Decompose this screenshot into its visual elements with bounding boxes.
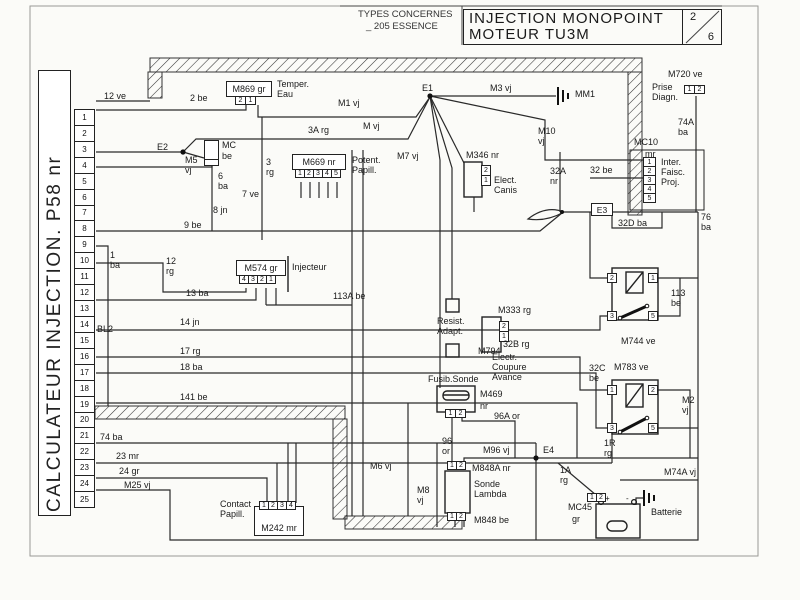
resist-adapt-label: Resist.Adapt.: [437, 316, 465, 336]
pin-cell: 14: [74, 316, 95, 333]
fusib-sonde-title: Fusib.Sonde: [428, 374, 479, 384]
elect-canis-label: Elect.Canis: [494, 175, 517, 195]
ecu-label: CALCULATEUR INJECTION. P58 nr: [44, 68, 66, 512]
pin-cell: 1: [245, 96, 256, 105]
battery-plus: +: [605, 495, 610, 504]
wire-label-m25vj: M25 vj: [124, 480, 151, 490]
wire-label-m5vj: M5 vj: [185, 155, 201, 175]
temper-eau-label: Temper.Eau: [277, 79, 309, 99]
wire-label-141be: 141 be: [180, 392, 208, 402]
contact-papill-ref: M242 mr: [254, 506, 304, 536]
relay-inj-pin3: 3: [607, 423, 617, 433]
pin-cell: 16: [74, 348, 95, 365]
sonde-bottom-ref: M848 be: [474, 515, 509, 525]
page-indicator: 2 6: [682, 9, 722, 45]
pin-cell: 4: [286, 501, 296, 510]
relay-inj-pin2: 2: [648, 385, 658, 395]
pin-cell: 8: [74, 220, 95, 237]
wire-label-96aor: 96A or: [494, 411, 520, 421]
pin-cell: 5: [74, 173, 95, 190]
pin-cell: 22: [74, 443, 95, 460]
pin-cell: 4: [74, 157, 95, 174]
fusib-sonde-ref: M469: [480, 389, 503, 399]
injecteur-connector: 4321: [240, 275, 276, 284]
page-total: 6: [708, 31, 714, 43]
elect-canis-ref: M346 nr: [466, 150, 499, 160]
relay-pompe-pin1: 1: [648, 273, 658, 283]
mc-color: be: [222, 151, 232, 161]
page-number: 2: [690, 11, 696, 23]
pin-cell: 12: [74, 284, 95, 301]
wire-label-18ba: 18 ba: [180, 362, 203, 372]
wire-label-m3vj: M3 vj: [490, 83, 512, 93]
wire-label-3rg: 3 rg: [266, 157, 280, 177]
pin-cell: 21: [74, 427, 95, 444]
injecteur-ref: M574 gr: [236, 260, 286, 276]
wire-label-6ba: 6 ba: [218, 171, 232, 191]
pin-cell: 18: [74, 380, 95, 397]
prise-diagn-connector: 12: [685, 85, 705, 94]
wire-label-2be: 2 be: [190, 93, 208, 103]
relay-pompe-pin3: 3: [607, 311, 617, 321]
contact-papill-connector: 1234: [260, 501, 296, 510]
types-value: _ 205 ESSENCE: [358, 21, 453, 33]
battery-conn-ref: MC45: [568, 502, 592, 512]
wire-label-32cbe: 32C be: [589, 363, 609, 383]
wire-label-3arg: 3A rg: [308, 125, 329, 135]
pin-cell: 5: [643, 193, 656, 203]
title-line2: MOTEUR TU3M: [469, 27, 677, 43]
pin-cell: 2: [455, 409, 466, 418]
coupure-avance-ref: M333 rg: [498, 305, 531, 315]
wire-label-12ve: 12 ve: [104, 91, 126, 101]
pin-cell: 1: [481, 175, 491, 186]
wire-label-96or: 96 or: [442, 436, 456, 456]
coupure-avance-label: Electr.CoupureAvance: [492, 352, 527, 382]
pin-cell: 13: [74, 300, 95, 317]
wire-label-1arg: 1A rg: [560, 465, 574, 485]
pin-cell: 15: [74, 332, 95, 349]
relay-inj-pin5: 5: [648, 423, 658, 433]
ground-icon-battery: [644, 490, 654, 506]
wire-label-m10vj: M10 vj: [538, 126, 560, 146]
potent-papill-connector: 12345: [296, 169, 341, 178]
wire-label-76ba: 76 ba: [701, 212, 717, 232]
inter-faisc-ref: MC10: [634, 137, 658, 147]
title-line1: INJECTION MONOPOINT: [469, 11, 677, 27]
wire-label-32anr: 32A nr: [550, 166, 572, 186]
battery-label: Batterie: [651, 507, 682, 517]
wire-label-m2vj: M2 vj: [682, 395, 698, 415]
wire-label-32be: 32 be: [590, 165, 613, 175]
fusib-sonde-connector: 12: [446, 409, 466, 418]
elect-canis-connector: 21: [481, 166, 491, 186]
wire-label-7ve: 7 ve: [242, 189, 259, 199]
wire-label-14jn: 14 jn: [180, 317, 200, 327]
pin-cell: 19: [74, 396, 95, 413]
wire-label-113be: 113 be: [671, 288, 689, 308]
wire-label-13ba: 13 ba: [186, 288, 209, 298]
wire-label-m96vj: M96 vj: [483, 445, 510, 455]
pin-cell: 1: [266, 275, 276, 284]
pin-cell: 2: [456, 512, 466, 521]
sonde-bottom-connector: 12: [448, 512, 466, 521]
wire-label-m8vj: M8 vj: [417, 485, 433, 505]
wire-label-23mr: 23 mr: [116, 451, 139, 461]
wire-label-17rg: 17 rg: [180, 346, 201, 356]
pin-cell: 2: [694, 85, 705, 94]
pin-cell: 2: [74, 125, 95, 142]
types-concernes: TYPES CONCERNES _ 205 ESSENCE: [358, 9, 453, 33]
pin-cell: 10: [74, 252, 95, 269]
wire-label-m7vj: M7 vj: [397, 151, 419, 161]
temper-eau-ref: M869 gr: [226, 81, 272, 97]
pin-cell: 5: [331, 169, 341, 178]
relay-inj-pin1: 1: [607, 385, 617, 395]
ecu-pin-strip: 1234567891011121314151617181920212223242…: [74, 110, 95, 508]
pin-cell: 3: [74, 141, 95, 158]
pin-cell: 23: [74, 459, 95, 476]
relay-pompe-pin2: 2: [607, 273, 617, 283]
injecteur-label: Injecteur: [292, 262, 327, 272]
wire-label-m74avj: M74A vj: [664, 467, 696, 477]
sonde-lambda-label: SondeLambda: [474, 479, 507, 499]
node-label-e2: E2: [157, 142, 168, 152]
wire-label-113abe: 113A be: [333, 291, 365, 301]
potent-papill-ref: M669 nr: [292, 154, 346, 170]
inter-faisc-connector: 12345: [643, 158, 656, 203]
contact-papill-label: ContactPapill.: [220, 499, 251, 519]
pin-cell: 11: [74, 268, 95, 285]
node-label-e3: E3: [591, 203, 613, 216]
wire-label-12rg: 12 rg: [166, 256, 181, 276]
pin-cell: 7: [74, 205, 95, 222]
pin-cell: 20: [74, 412, 95, 429]
ground-label-mm1: MM1: [575, 89, 595, 99]
pin-cell: 6: [74, 189, 95, 206]
pin-cell: 9: [74, 236, 95, 253]
wiring-diagram-sheet: { "header": { "types_label": "TYPES CONC…: [0, 0, 800, 600]
wire-label-bl2: BL2: [97, 324, 113, 334]
battery-conn-color: gr: [572, 514, 580, 524]
wire-label-m720ve: M720 ve: [668, 69, 703, 79]
wire-label-mvj: M vj: [363, 121, 380, 131]
relay-pompe-ref: M744 ve: [621, 336, 656, 346]
wire-label-24gr: 24 gr: [119, 466, 140, 476]
node-label-e1: E1: [422, 83, 433, 93]
wire-label-74ba: 74 ba: [100, 432, 123, 442]
temper-eau-connector: 21: [236, 96, 256, 105]
types-label: TYPES CONCERNES: [358, 9, 453, 21]
wire-label-m6vj: M6 vj: [370, 461, 392, 471]
title-block: INJECTION MONOPOINT MOTEUR TU3M: [463, 9, 683, 45]
wire-label-9be: 9 be: [184, 220, 202, 230]
battery-connector: 12: [588, 493, 606, 502]
prise-diagn-label: PriseDiagn.: [652, 82, 678, 102]
wire-label-1rrg: 1R rg: [604, 438, 618, 458]
relay-inj-ref: M783 ve: [614, 362, 649, 372]
potent-papill-label: Potent.Papill.: [352, 155, 381, 175]
sonde-top-connector: 12: [448, 461, 466, 470]
sonde-top-ref: M848A nr: [472, 463, 511, 473]
pin-cell: 2: [456, 461, 466, 470]
fusib-sonde-color: nr: [480, 401, 488, 411]
inter-faisc-label: Inter.Faisc.Proj.: [661, 157, 685, 187]
battery-minus: -: [626, 495, 629, 504]
node-label-e4: E4: [543, 445, 554, 455]
pin-cell: 1: [74, 109, 95, 126]
wire-label-32dba: 32D ba: [618, 218, 647, 228]
wire-label-m1vj: M1 vj: [338, 98, 360, 108]
pin-cell: 17: [74, 364, 95, 381]
wire-label-1ba: 1 ba: [110, 250, 124, 270]
wire-label-74aba: 74A ba: [678, 117, 698, 137]
mc-connector: [204, 140, 219, 166]
pin-cell: 25: [74, 491, 95, 508]
wire-label-8jn: 8 jn: [213, 205, 228, 215]
mc-ref: MC: [222, 140, 236, 150]
pin-cell: 24: [74, 475, 95, 492]
ground-icon-mm1: [558, 87, 568, 105]
relay-pompe-pin5: 5: [648, 311, 658, 321]
wire-label-32brg: 32B rg: [503, 339, 530, 349]
